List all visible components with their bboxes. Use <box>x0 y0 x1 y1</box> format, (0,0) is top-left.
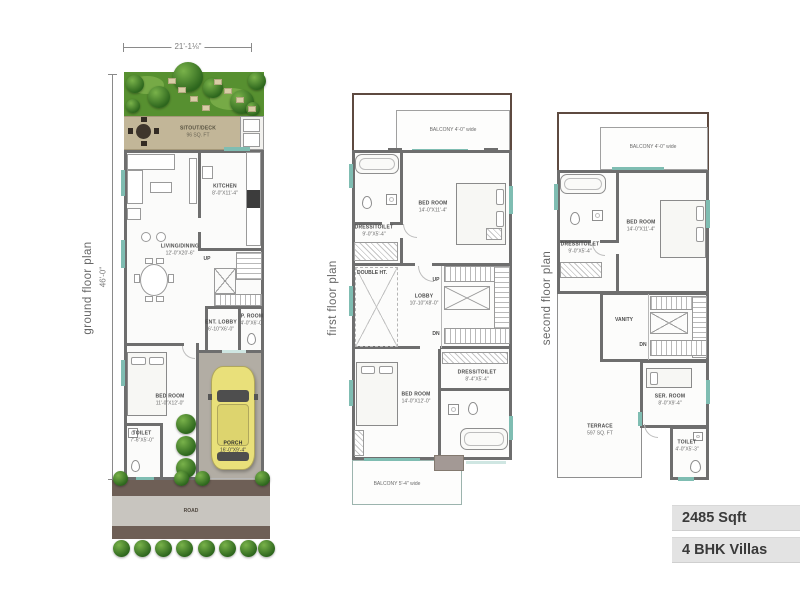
height-dimension-label: 46'-0" <box>99 264 108 290</box>
bhk-badge: 4 BHK Villas <box>672 537 800 563</box>
ent-lobby-label: ENT. LOBBY 6'-10"X6'-0" <box>205 320 237 333</box>
toilet-block <box>670 426 709 480</box>
wall <box>616 170 619 242</box>
living-dining-label: LIVING/DINING 12'-0"X20'-6" <box>161 244 199 257</box>
balcony-top-label: BALCONY 4'-0" wide <box>630 144 677 151</box>
floor-plan-sheet: ground floor plan 21'-1⅛" 46'-0" <box>0 0 800 600</box>
area-badge: 2485 Sqft <box>672 505 800 531</box>
window <box>706 200 710 228</box>
sitout-label: SITOUT/DECK 96 SQ. FT <box>180 126 216 139</box>
toilet-wc <box>570 212 580 225</box>
bedroom-label: BED ROOM 14'-0"X11'-4" <box>626 220 655 233</box>
bedroom-label: BED ROOM 11'-0"X12'-0" <box>155 394 184 407</box>
wardrobe <box>560 262 602 278</box>
door-threshold <box>638 412 642 426</box>
window <box>678 477 694 481</box>
kitchen-label: KITCHEN 8'-0"X11'-4" <box>212 184 238 197</box>
wall <box>616 254 619 294</box>
terrace-label: TERRACE 597 SQ. FT <box>587 424 613 437</box>
balcony-bottom-label: BALCONY 5'-4" wide <box>374 481 421 488</box>
dn-label: DN <box>432 331 439 338</box>
toilet-label: TOILET 4'-0"X5'-3" <box>675 440 698 453</box>
double-ht-label: DOUBLE HT. <box>357 270 387 277</box>
dress-toilet-label: DRESS/TOILET 9'-0"X5'-4" <box>561 242 600 255</box>
porch-label: PORCH 16'-0"X9'-4" <box>220 441 246 454</box>
bed <box>660 200 706 258</box>
first-floor-title: first floor plan <box>327 260 339 335</box>
width-dimension-label: 21'-1⅛" <box>171 42 204 52</box>
dress-toilet-label: DRESS/TOILET 9'-0"X5'-4" <box>355 225 394 238</box>
lobby-label: LOBBY 10'-10"X8'-0" <box>410 294 439 307</box>
up-label: UP <box>204 256 211 263</box>
vanity-label: VANITY <box>615 317 633 324</box>
balcony-top-label: BALCONY 4'-0" wide <box>430 127 477 134</box>
toilet-label: TOILET 7'-6"X5'-0" <box>130 431 153 444</box>
door-swing <box>644 424 658 438</box>
bathtub <box>560 174 606 194</box>
boundary <box>557 112 559 172</box>
sink <box>592 210 603 221</box>
ground-floor-title: ground floor plan <box>82 241 94 334</box>
dress-toilet-label: DRESS/TOILET 8'-4"X5'-4" <box>458 370 497 383</box>
up-label: UP <box>433 277 440 284</box>
toilet-wc <box>690 460 701 473</box>
bedroom-label: BED ROOM 14'-0"X11'-4" <box>418 201 447 214</box>
p-room-label: P. ROOM 4'-0"X6'-0" <box>240 314 263 327</box>
bed <box>646 368 692 388</box>
window <box>554 184 558 210</box>
road-label: ROAD <box>184 508 199 515</box>
window <box>706 380 710 404</box>
ser-room-label: SER. ROOM 8'-0"X9'-4" <box>655 394 685 407</box>
second-floor-title: second floor plan <box>541 251 553 345</box>
bedroom-label: BED ROOM 14'-0"X12'-0" <box>401 392 430 405</box>
dn-label: DN <box>639 342 646 349</box>
boundary <box>557 112 709 114</box>
